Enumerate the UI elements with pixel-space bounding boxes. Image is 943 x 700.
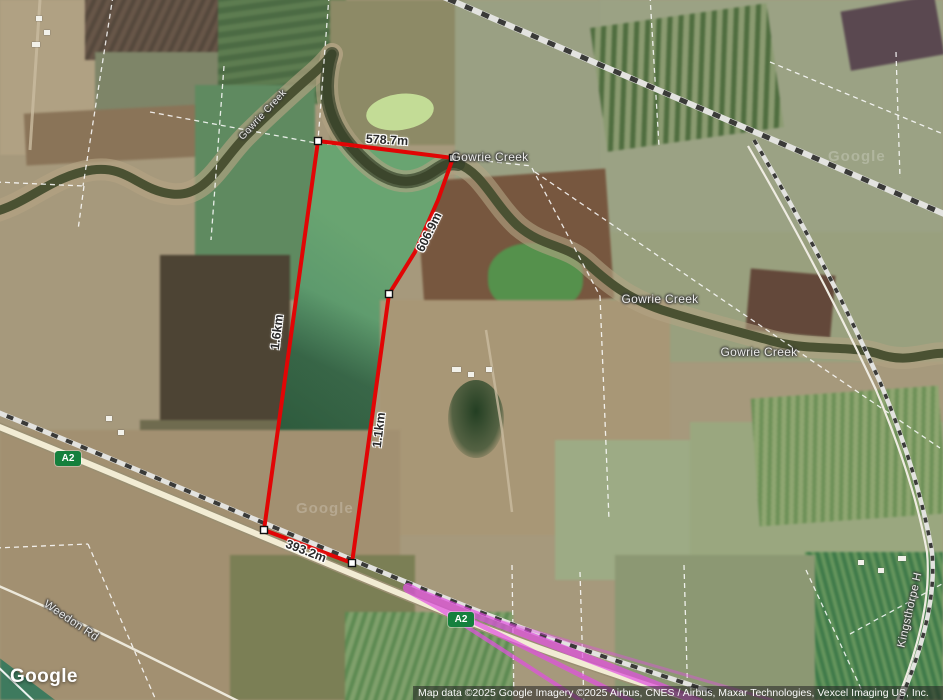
building	[118, 430, 124, 435]
creek-label: Gowrie Creek	[622, 292, 699, 306]
map-overlay-graphics	[0, 0, 943, 700]
building	[44, 30, 50, 35]
tile-watermark: Google	[296, 500, 354, 517]
pond	[364, 89, 436, 134]
boundary-line	[650, 0, 659, 146]
railway-main-ties	[432, 0, 943, 220]
map-canvas[interactable]: 578.7m 606.9m 1.6km 1.1km 393.2m Gowrie …	[0, 0, 943, 700]
attribution-text: Map data ©2025 Google Imagery ©2025 Airb…	[418, 687, 929, 699]
boundary-line	[600, 296, 609, 520]
boundary-line	[0, 544, 88, 548]
railway-main	[432, 0, 943, 220]
selection-line[interactable]	[414, 592, 640, 700]
boundary-line	[78, 186, 84, 230]
boundary-line	[770, 62, 943, 136]
creek-label: Gowrie Creek	[452, 150, 529, 164]
vertex-handle[interactable]	[315, 138, 322, 145]
building	[898, 556, 906, 561]
railway-highway-ties	[0, 410, 712, 692]
vertex-handle[interactable]	[261, 527, 268, 534]
building	[106, 416, 112, 421]
farm-track	[30, 0, 40, 150]
boundary-line	[806, 570, 864, 695]
boundary-line	[83, 0, 113, 186]
creek-label: Gowrie Creek	[721, 345, 798, 359]
google-logo[interactable]: Google	[10, 666, 78, 688]
building	[452, 367, 461, 372]
building	[486, 367, 492, 372]
route-shield-a2: A2	[448, 612, 474, 627]
kingsthorpe-road	[748, 146, 928, 700]
measurement-polygon[interactable]	[264, 141, 453, 563]
attribution-bar: Map data ©2025 Google Imagery ©2025 Airb…	[413, 686, 943, 700]
building	[858, 560, 864, 565]
railway-highway	[0, 410, 712, 692]
route-shield-a2: A2	[55, 451, 81, 466]
farm-track	[486, 330, 512, 512]
boundary-line	[535, 172, 940, 448]
measurement-label-top: 578.7m	[365, 132, 408, 148]
vertex-handle[interactable]	[349, 560, 356, 567]
boundary-line	[580, 572, 584, 700]
boundary-line	[684, 565, 688, 700]
building	[878, 568, 884, 573]
building	[36, 16, 42, 21]
building	[32, 42, 40, 47]
vertex-handle[interactable]	[386, 291, 393, 298]
tile-watermark: Google	[828, 148, 886, 165]
building	[468, 372, 474, 377]
boundary-line	[88, 544, 158, 700]
